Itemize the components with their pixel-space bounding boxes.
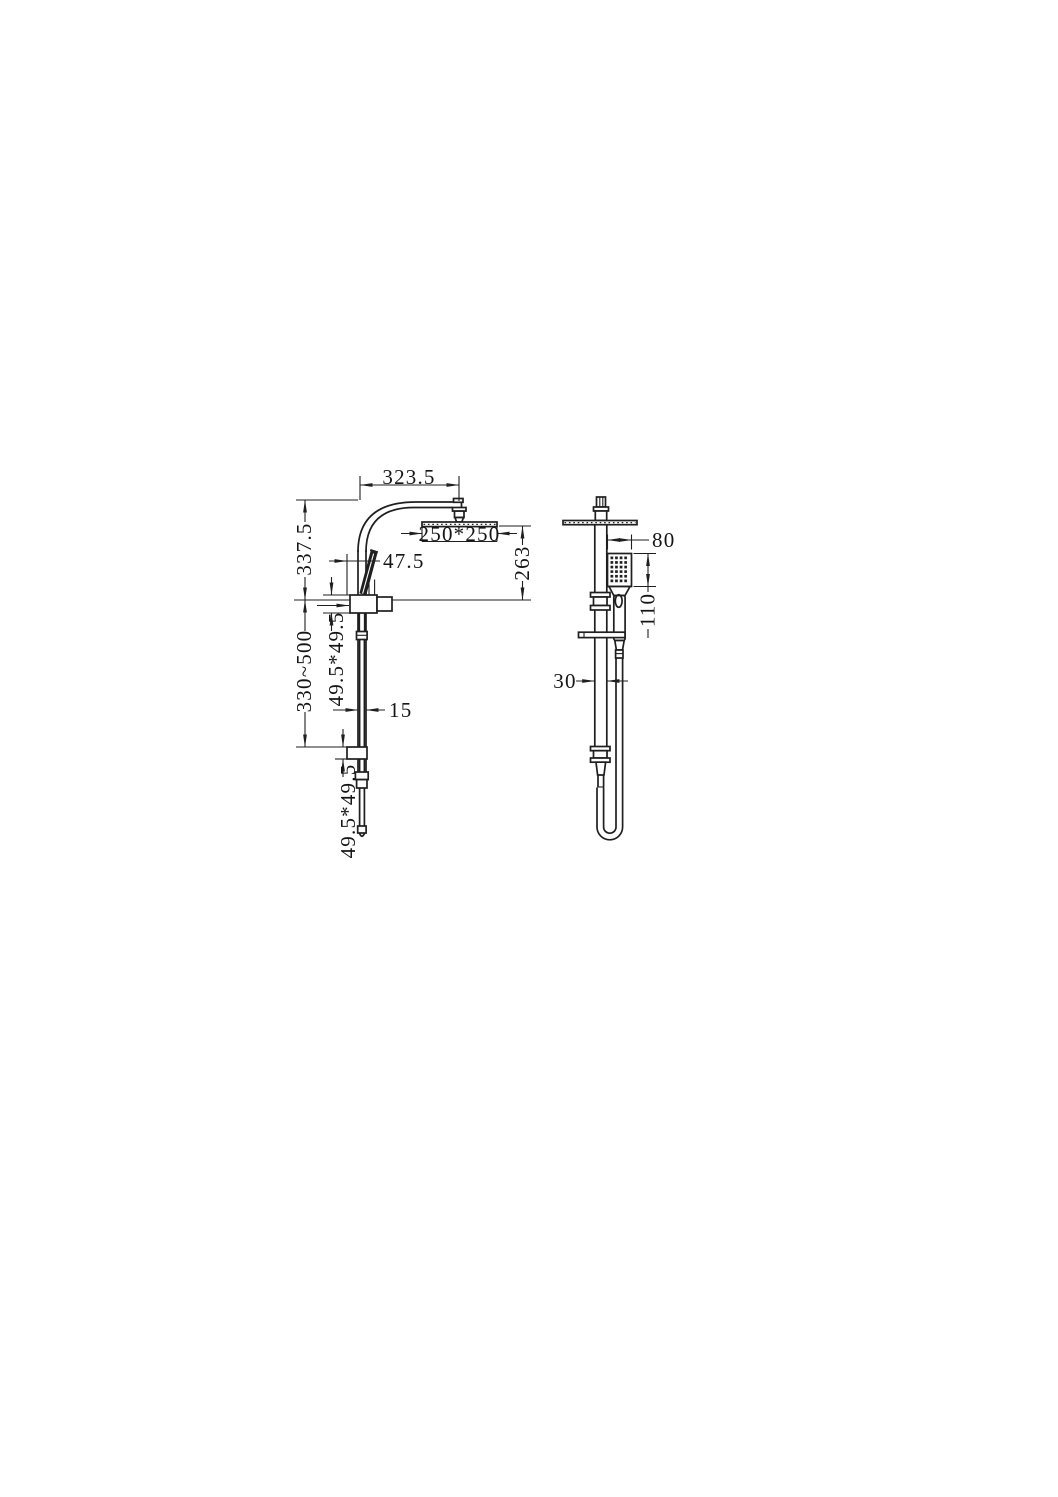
front-view: 323.5 337.5 250*250 263 47.5 49.5*49.5 3… xyxy=(292,465,534,858)
dim-rail-depth: 30 xyxy=(553,669,576,693)
front-handheld-wand xyxy=(359,550,377,596)
dim-head-drop: 263 xyxy=(510,545,534,580)
dim-rail-width: 15 xyxy=(389,698,412,722)
side-inlet xyxy=(596,762,606,787)
shower-set-dimension-drawing: 323.5 337.5 250*250 263 47.5 49.5*49.5 3… xyxy=(0,0,1058,1497)
dim-handset-offset: 47.5 xyxy=(383,549,425,573)
front-lower-bracket xyxy=(347,747,367,759)
side-slide-arm xyxy=(579,632,626,637)
side-handheld-shower xyxy=(608,554,632,659)
side-top-connector xyxy=(594,497,609,521)
side-shower-head-plate xyxy=(563,521,637,525)
side-lower-bracket xyxy=(591,747,611,763)
dim-handset-width: 80 xyxy=(652,528,675,552)
dim-handset-length: 110 xyxy=(636,593,660,627)
dim-upper-height: 337.5 xyxy=(292,522,316,575)
dim-upper-bracket: 49.5*49.5 xyxy=(324,612,348,707)
dim-head-size: 250*250 xyxy=(419,522,501,546)
technical-drawing-page: 323.5 337.5 250*250 263 47.5 49.5*49.5 3… xyxy=(0,0,1058,1497)
dim-lower-bracket: 49.5*49.5 xyxy=(336,764,360,859)
front-overhead-connector xyxy=(453,499,467,523)
side-upper-bracket xyxy=(591,593,611,611)
dim-arm-reach: 323.5 xyxy=(382,465,435,489)
side-view: 80 110 30 xyxy=(553,497,675,840)
dim-adjust-range: 330~500 xyxy=(292,630,316,713)
side-rail xyxy=(595,525,607,762)
front-upper-bracket xyxy=(350,595,392,613)
